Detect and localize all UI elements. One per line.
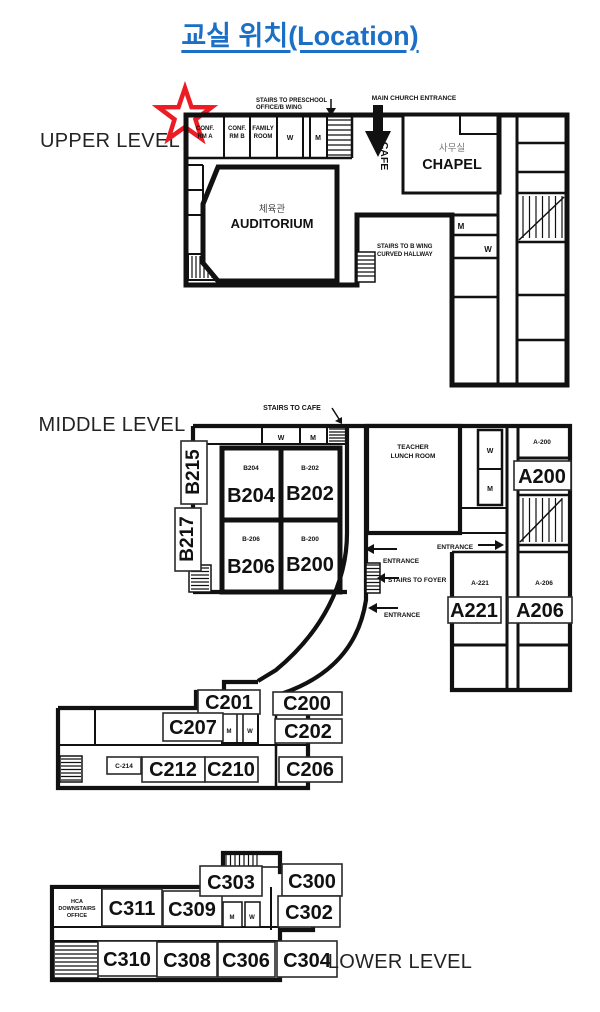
c202-label: C202 — [284, 721, 332, 743]
a200-small-label: A-200 — [533, 439, 551, 446]
a206-small-label: A-206 — [535, 580, 553, 587]
lower-left-stairs — [54, 942, 98, 978]
c310-label: C310 — [103, 949, 151, 971]
c309-label: C309 — [168, 899, 216, 921]
hca-label3: OFFICE — [67, 913, 87, 919]
middle-w-label: W — [278, 435, 285, 442]
stairs-preschool-label: STAIRS TO PRESCHOOL — [256, 98, 327, 104]
b215-label: B215 — [183, 449, 204, 495]
family-room-label: FAMILY — [252, 126, 273, 132]
conf-rm-b-label: CONF. — [228, 126, 246, 132]
b200-small-label: B-200 — [301, 536, 319, 543]
b204-label: B204 — [227, 485, 276, 507]
b217-label: B217 — [177, 516, 198, 561]
c308-label: C308 — [163, 950, 211, 972]
middle-level-plan: MIDDLE LEVEL STAIRS TO CAFE W M B204 B20… — [39, 405, 573, 788]
entrance2-arrowhead-icon — [368, 603, 377, 613]
b202-label: B202 — [286, 483, 334, 505]
upper-m-right-label: M — [458, 222, 465, 231]
middle-w2-label: W — [487, 448, 494, 455]
c303-label: C303 — [207, 872, 255, 894]
conf-rm-a-label2: RM A — [197, 134, 213, 140]
c-wing-m-label: M — [227, 729, 232, 735]
c311-label: C311 — [109, 898, 156, 920]
lower-w-label: W — [249, 915, 255, 921]
chapel-kr-label: 사무실 — [439, 143, 465, 154]
b202-small-label: B-202 — [301, 465, 319, 472]
upper-left-rooms — [186, 165, 203, 215]
a206-label: A206 — [516, 600, 564, 622]
c-wing-mw-rooms — [222, 712, 258, 743]
c212-label: C212 — [149, 759, 197, 781]
middle-toprow — [196, 426, 348, 444]
c304-label: C304 — [283, 950, 332, 972]
c210-label: C210 — [207, 759, 255, 781]
middle-m-label: M — [310, 435, 316, 442]
chapel-room — [403, 115, 500, 193]
family-room-label2: ROOM — [254, 134, 273, 140]
middle-level-label: MIDDLE LEVEL — [39, 414, 186, 436]
b204-small-label: B204 — [243, 465, 259, 472]
upper-w-label: W — [287, 135, 294, 142]
b206-small-label: B-206 — [242, 536, 260, 543]
b200-label: B200 — [286, 554, 334, 576]
upper-m-label: M — [315, 135, 321, 142]
hca-label2: DOWNSTAIRS — [58, 906, 96, 912]
stairs-preschool-label2: OFFICE/B WING — [256, 105, 302, 111]
entrance1-label: ENTRANCE — [383, 558, 420, 565]
c300-label: C300 — [288, 871, 336, 893]
a200-label: A200 — [518, 466, 566, 488]
stairs-foyer-label: STAIRS TO FOYER — [388, 577, 447, 584]
entrance-right-label: ENTRANCE — [437, 544, 474, 551]
a221-label: A221 — [450, 600, 498, 622]
c-wing-w-label: W — [247, 729, 253, 735]
floor-plan-svg: UPPER LEVEL CONF. RM A CONF. RM B FAMILY… — [0, 0, 600, 1012]
lower-level-plan: HCA DOWNSTAIRS OFFICE M W C311 C309 C303… — [52, 853, 472, 980]
stairs-bwing-label: STAIRS TO B WING — [377, 244, 433, 250]
stairs-cafe-label: STAIRS TO CAFE — [263, 405, 321, 412]
c200-label: C200 — [283, 693, 331, 715]
conf-rm-b-label2: RM B — [229, 134, 245, 140]
floor-plan-page: 교실 위치(Location) UPPER LEVEL CONF. RM A C… — [0, 0, 600, 1012]
upper-level-plan: UPPER LEVEL CONF. RM A CONF. RM B FAMILY… — [40, 88, 567, 385]
entrance2-label: ENTRANCE — [384, 612, 421, 619]
entrance-right-arrowhead-icon — [495, 540, 504, 550]
middle-m2-label: M — [487, 486, 493, 493]
conf-rm-a-label: CONF. — [196, 126, 214, 132]
upper-right-col-dividers — [517, 143, 567, 340]
c302-label: C302 — [285, 902, 333, 924]
c201-label: C201 — [205, 692, 253, 714]
hca-label: HCA — [71, 899, 83, 905]
main-entrance-label: MAIN CHURCH ENTRANCE — [372, 95, 457, 102]
stairs-hatch — [327, 120, 351, 155]
stairs-hatch — [329, 429, 346, 441]
chapel-label: CHAPEL — [422, 157, 482, 173]
stairs-diagonal — [519, 197, 564, 240]
c306-label: C306 — [222, 950, 270, 972]
middle-mw-rooms — [478, 430, 502, 505]
stairs-bwing-label2: CURVED HALLWAY — [377, 252, 433, 258]
teacher-lunch-room — [367, 426, 460, 533]
c207-label: C207 — [169, 717, 217, 739]
upper-level-label: UPPER LEVEL — [40, 130, 180, 152]
b206-label: B206 — [227, 556, 275, 578]
lower-level-label: LOWER LEVEL — [328, 951, 472, 973]
lower-m-label: M — [230, 915, 235, 921]
auditorium-label: AUDITORIUM — [231, 216, 314, 231]
c206-label: C206 — [286, 759, 334, 781]
stairs-cafe-arrow-icon — [332, 408, 339, 419]
stairs-hatch — [61, 759, 81, 780]
upper-w-right-label: W — [484, 245, 492, 254]
teacher-label2: LUNCH ROOM — [391, 453, 436, 460]
cafe-label: CAFE — [378, 142, 390, 171]
auditorium-kr-label: 체육관 — [259, 204, 285, 215]
c214-label: C-214 — [115, 763, 133, 770]
a221-small-label: A-221 — [471, 580, 489, 587]
teacher-label: TEACHER — [397, 444, 429, 451]
